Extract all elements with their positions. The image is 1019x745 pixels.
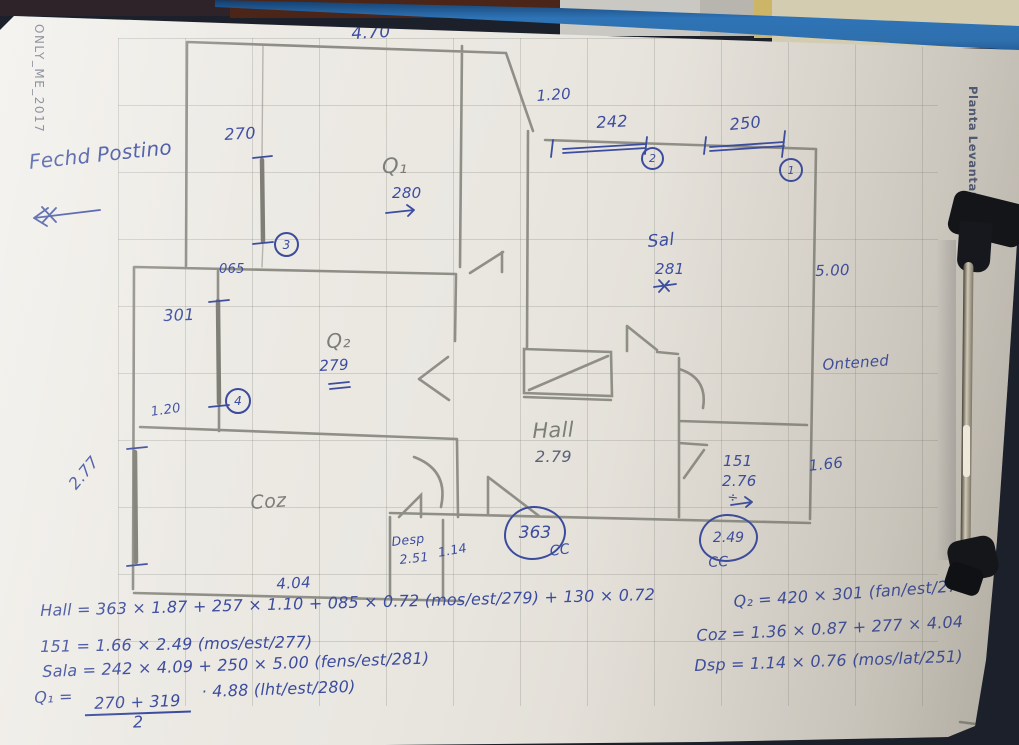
room-label-coz: Coz [250,492,287,513]
window-marker-3: 3 [274,232,299,257]
dim-door-gap-120: 1.20 [150,402,182,419]
clip-rod-highlight [963,425,970,477]
equation-q1-prefix: Q₁ = [34,687,73,707]
equation-q1-fraction: 270 + 319 2 [84,693,192,733]
equation-q1-suffix: · 4.88 (lht/est/280) [201,677,356,701]
photo-floorplan-clipboard: { "watermarks": { "left": "ONLY_ME_2017"… [0,0,1019,745]
divide-mark: ÷ [727,491,740,505]
dim-top-width: 4.70 [351,24,391,43]
dim-right-offset-166: 1.66 [808,455,844,474]
dim-window-250: 250 [729,114,762,133]
note-outside: Ontened [822,353,890,373]
dim-sala-depth: 5.00 [815,263,850,279]
dim-window-301: 301 [163,307,195,324]
room-label-sala: Sal [647,232,675,251]
watermark-only-me: ONLY_ME_2017 [32,24,46,133]
room-label-q1: Q₁ [382,156,408,177]
dim-window-270: 270 [224,125,256,143]
background-dark-left [0,0,230,16]
dim-top-gap-120: 1.20 [536,87,572,104]
clip-shadow [936,240,956,560]
window-marker-1: 1 [779,158,803,182]
dim-q2-height: 279 [319,357,349,374]
clip-grip-top [956,221,992,273]
dim-window-242: 242 [596,113,628,131]
dim-desp-height: 2.51 [399,551,429,566]
room-label-hall: Hall [532,420,574,442]
dim-hall-height: 2.79 [535,449,572,465]
dim-opening-065: 065 [219,263,245,276]
dim-coz-width: 4.04 [276,575,311,592]
equation-q1-denominator: 2 [133,714,144,731]
window-marker-4: 4 [225,388,251,414]
window-marker-2: 2 [641,147,664,170]
pencil-window-bars [135,160,263,562]
dim-sala-height: 281 [655,262,685,277]
room-label-151: 151 [723,454,753,469]
room-label-q2: Q₂ [326,330,351,351]
dim-151-height: 2.76 [722,474,757,489]
paper-sheet: ONLY_ME_2017 Planta Levantamento Fechd P… [0,0,1019,745]
dim-q1-height: 280 [392,186,422,201]
